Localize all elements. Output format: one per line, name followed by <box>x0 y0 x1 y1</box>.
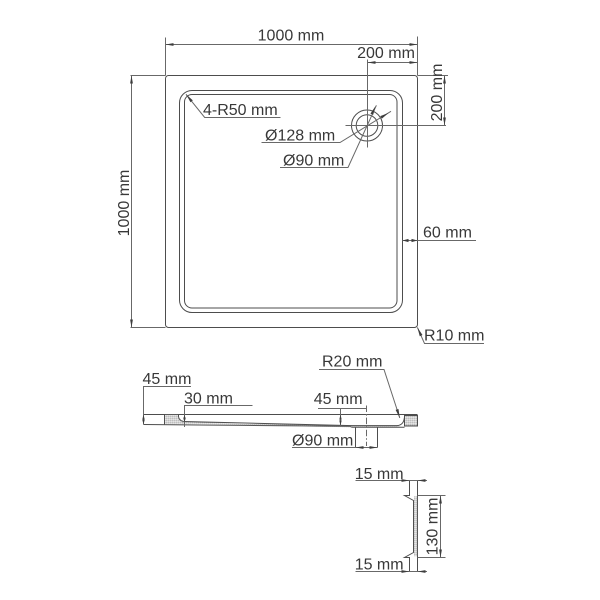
svg-text:200 mm: 200 mm <box>429 64 446 122</box>
svg-text:15 mm: 15 mm <box>355 557 404 574</box>
svg-text:1000 mm: 1000 mm <box>258 28 325 45</box>
svg-text:4-R50 mm: 4-R50 mm <box>203 102 278 119</box>
svg-text:15 mm: 15 mm <box>355 466 404 483</box>
svg-text:30 mm: 30 mm <box>184 391 233 408</box>
svg-text:Ø90 mm: Ø90 mm <box>292 433 353 450</box>
svg-text:Ø128 mm: Ø128 mm <box>265 127 335 144</box>
svg-text:Ø90 mm: Ø90 mm <box>283 153 344 170</box>
svg-text:R10 mm: R10 mm <box>424 328 484 345</box>
svg-text:1000 mm: 1000 mm <box>116 170 133 237</box>
svg-text:130 mm: 130 mm <box>425 498 442 556</box>
svg-text:45 mm: 45 mm <box>143 371 192 388</box>
svg-text:45 mm: 45 mm <box>314 391 363 408</box>
svg-text:200 mm: 200 mm <box>357 45 415 62</box>
svg-text:R20 mm: R20 mm <box>322 354 382 371</box>
svg-text:60 mm: 60 mm <box>423 224 472 241</box>
